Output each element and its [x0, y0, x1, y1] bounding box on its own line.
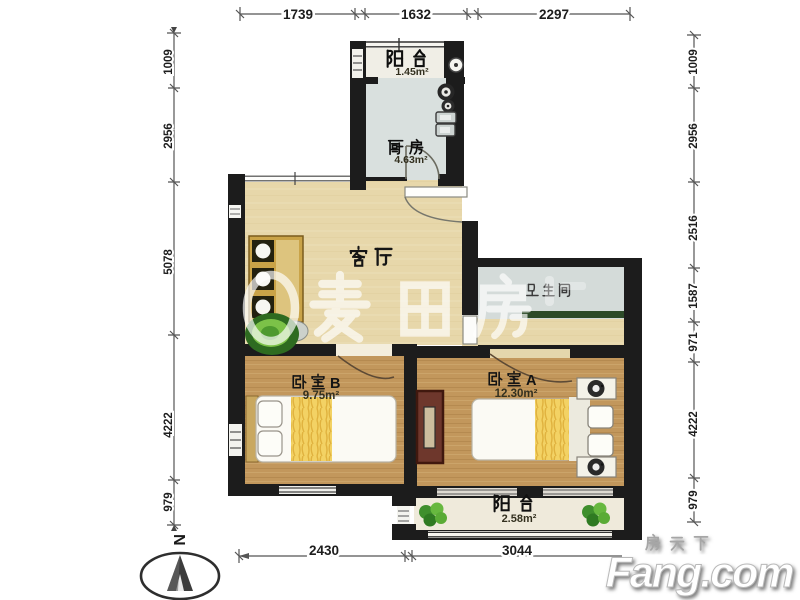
svg-text:N: N: [170, 534, 187, 546]
svg-text:1739: 1739: [283, 7, 313, 22]
svg-text:2430: 2430: [309, 543, 339, 558]
svg-text:3044: 3044: [502, 543, 533, 558]
svg-text:4222: 4222: [163, 412, 175, 438]
svg-text:1009: 1009: [688, 49, 700, 75]
svg-text:2.58m²: 2.58m²: [502, 513, 537, 525]
svg-text:4.63m²: 4.63m²: [394, 154, 428, 166]
svg-text:2956: 2956: [688, 123, 700, 149]
svg-text:5078: 5078: [163, 249, 175, 275]
svg-text:9.75m²: 9.75m²: [303, 390, 340, 402]
svg-text:4222: 4222: [688, 411, 700, 437]
svg-text:1009: 1009: [163, 49, 175, 75]
svg-text:2297: 2297: [539, 7, 569, 22]
svg-text:2516: 2516: [688, 215, 700, 241]
svg-text:1632: 1632: [401, 7, 431, 22]
svg-text:12.30m²: 12.30m²: [495, 388, 538, 400]
svg-text:A: A: [526, 373, 537, 389]
svg-text:971: 971: [688, 332, 700, 352]
svg-text:2956: 2956: [163, 123, 175, 149]
svg-text:979: 979: [688, 490, 700, 509]
svg-text:Fang.com: Fang.com: [605, 549, 793, 597]
svg-text:1.45m²: 1.45m²: [395, 66, 429, 78]
svg-text:1587: 1587: [688, 283, 700, 309]
svg-text:979: 979: [163, 492, 175, 511]
